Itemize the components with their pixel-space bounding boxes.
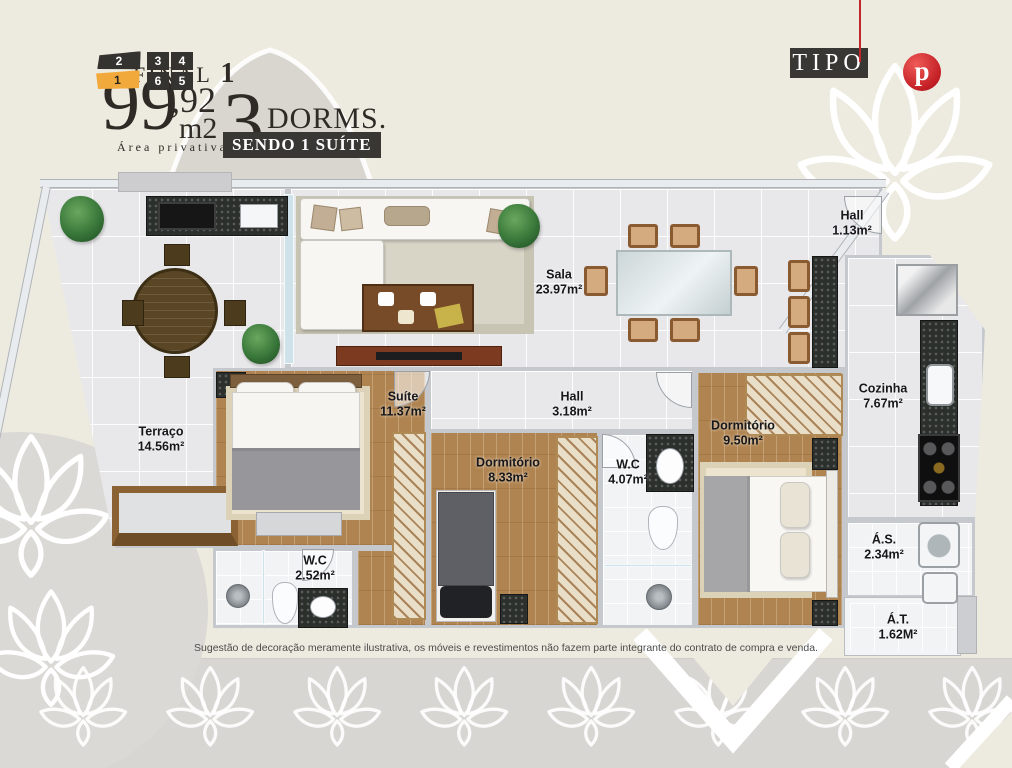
shower-glass xyxy=(604,564,692,567)
floorplan-page: FINAL 1 99 ,92 m2 Área privativa 3 DORMS… xyxy=(0,0,1012,768)
stove xyxy=(918,434,960,502)
room-label-terraco: Terraço14.56m² xyxy=(138,424,185,454)
bed-throw xyxy=(704,476,750,592)
plant xyxy=(60,196,104,242)
kitchen-sink xyxy=(926,364,954,406)
fridge xyxy=(896,264,958,316)
unit-button-5[interactable]: 5 xyxy=(171,72,193,90)
dining-chair xyxy=(670,318,700,342)
bed-headboard xyxy=(826,470,838,598)
nightstand xyxy=(500,594,528,624)
shower-head xyxy=(226,584,250,608)
shower-head xyxy=(646,584,672,610)
table-decor xyxy=(420,292,436,306)
pillow xyxy=(780,532,810,578)
brand-logo: p xyxy=(903,53,941,91)
room-label-hall-entrada: Hall1.13m² xyxy=(832,208,872,238)
side-chair xyxy=(788,296,810,328)
tipo-badge: TIPO xyxy=(790,48,868,78)
nightstand xyxy=(812,438,838,470)
unit-button-2[interactable]: 2 xyxy=(97,51,142,71)
room-label-cozinha: Cozinha7.67m² xyxy=(859,381,908,411)
vanity-sink xyxy=(310,596,336,618)
room-label-dormitorio-2: Dormitório9.50m² xyxy=(711,418,775,448)
terrace-chair xyxy=(164,356,190,378)
red-line xyxy=(859,0,861,62)
round-table xyxy=(132,268,218,354)
pillow xyxy=(780,482,810,528)
balcony-slab xyxy=(118,172,232,192)
bed-duvet xyxy=(438,492,494,586)
dining-chair xyxy=(628,224,658,248)
bbq-grill xyxy=(158,202,216,230)
pillow-dark xyxy=(440,586,492,618)
side-chair xyxy=(788,260,810,292)
dining-chair xyxy=(734,266,758,296)
nightstand xyxy=(812,600,838,626)
dresser xyxy=(256,512,342,536)
header: FINAL 1 99 ,92 m2 Área privativa 3 DORMS… xyxy=(95,52,475,167)
bbq-sink xyxy=(240,204,278,228)
shower-glass xyxy=(262,550,265,624)
dining-chair xyxy=(628,318,658,342)
sideboard xyxy=(812,256,838,368)
room-label-hall-interno: Hall3.18m² xyxy=(552,389,592,419)
table-decor xyxy=(378,292,394,306)
room-label-suite: Suíte11.37m² xyxy=(380,389,426,419)
sofa-cushion xyxy=(384,206,430,226)
unit-button-1[interactable]: 1 xyxy=(95,70,141,90)
plant xyxy=(498,204,540,248)
suite-closet xyxy=(392,432,426,620)
area-caption: Área privativa xyxy=(117,140,228,155)
unit-button-4[interactable]: 4 xyxy=(171,52,193,70)
bed-blanket xyxy=(232,448,360,510)
washing-machine xyxy=(918,522,960,568)
dining-chair xyxy=(584,266,608,296)
suite-banner: SENDO 1 SUÍTE xyxy=(223,132,381,158)
dining-table xyxy=(616,250,732,316)
unit-button-6[interactable]: 6 xyxy=(147,72,169,90)
terrace-chair xyxy=(164,244,190,266)
dorms-label: DORMS. xyxy=(267,102,387,136)
room-label-dormitorio-1: Dormitório8.33m² xyxy=(476,455,540,485)
tv-screen xyxy=(376,352,462,360)
table-decor xyxy=(398,310,414,324)
terrace-chair xyxy=(122,300,144,326)
side-chair xyxy=(788,332,810,364)
lotus-pattern-row xyxy=(41,668,1012,745)
room-label-wc-suite: W.C2.52m² xyxy=(295,553,335,583)
disclaimer-text: Sugestão de decoração meramente ilustrat… xyxy=(194,642,818,654)
sofa-cushion xyxy=(339,207,364,232)
room-label-wc-social: W.C4.07m² xyxy=(608,457,648,487)
room-label-area-tecnica: Á.T.1.62M² xyxy=(879,612,918,642)
terrace-bench xyxy=(112,486,238,546)
laundry-tank xyxy=(922,572,958,604)
dorm1-wardrobe xyxy=(556,436,598,624)
unit-grid: 3 4 6 5 xyxy=(147,52,193,90)
room-label-area-servico: Á.S.2.34m² xyxy=(864,532,904,562)
unit-button-3[interactable]: 3 xyxy=(147,52,169,70)
side-slab xyxy=(957,596,977,654)
sofa-cushion xyxy=(310,204,337,231)
vanity-sink xyxy=(656,448,684,484)
dining-chair xyxy=(670,224,700,248)
terrace-chair xyxy=(224,300,246,326)
plant xyxy=(242,324,280,364)
unit-selector: 2 1 3 4 6 5 xyxy=(95,52,210,94)
room-label-sala: Sala23.97m² xyxy=(536,267,583,297)
